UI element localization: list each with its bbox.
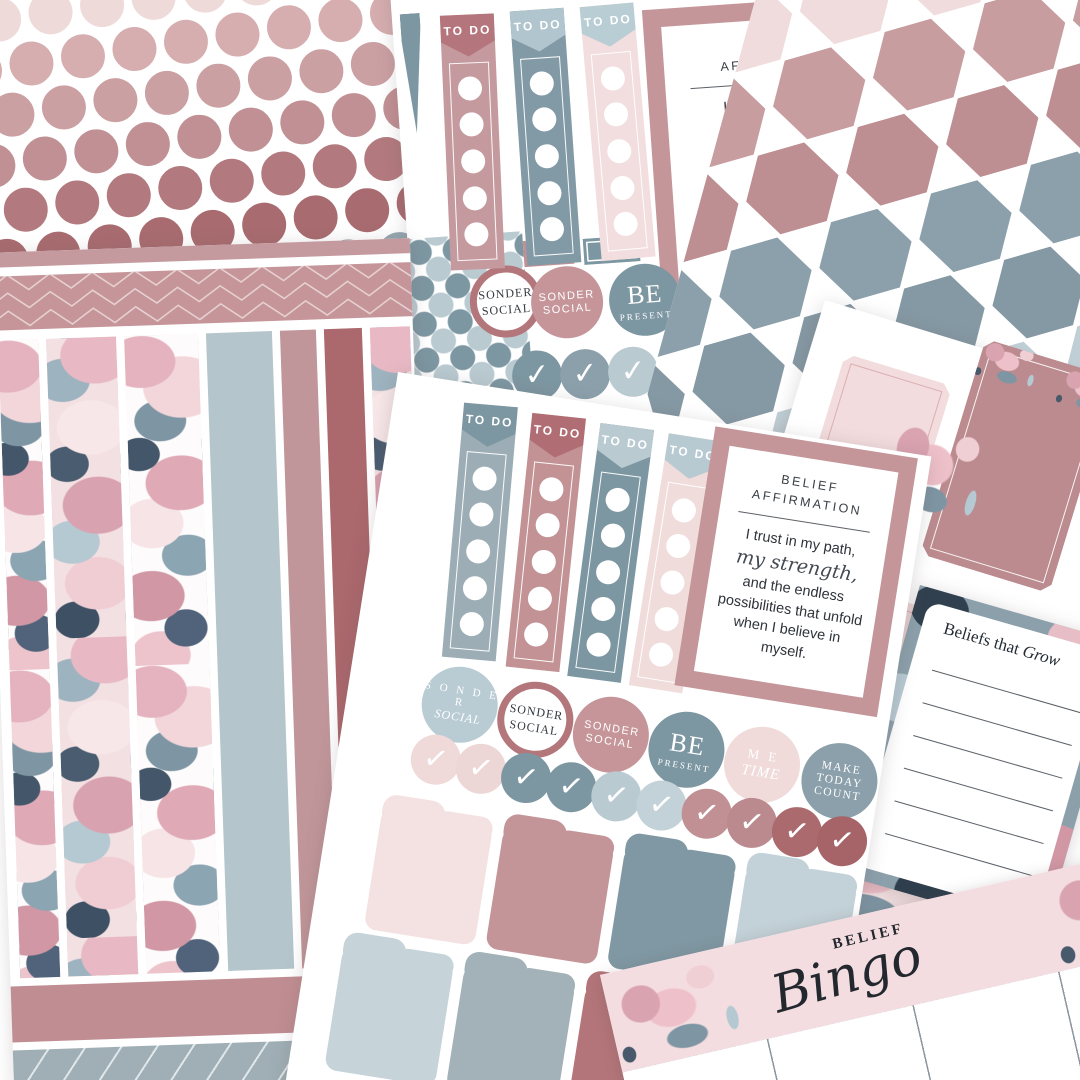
checklist-dot xyxy=(538,476,564,502)
checklist-dot xyxy=(585,631,612,658)
todo-strip-header: TO DO xyxy=(440,13,496,57)
dot-sticker xyxy=(277,98,327,148)
todo-strip-sticker: TO DO xyxy=(440,13,505,270)
checklist-dot xyxy=(468,502,494,528)
circle-sticker-label: SOCIAL xyxy=(481,300,531,318)
dot-sticker xyxy=(123,119,173,169)
dot-sticker xyxy=(264,2,314,52)
dot-sticker xyxy=(291,193,341,243)
checklist-dot xyxy=(590,595,617,622)
circle-sticker-me-time: M ETIME xyxy=(719,721,806,808)
checkmark-sticker: ✓ xyxy=(452,740,509,797)
dot-sticker xyxy=(194,61,244,111)
solid-washi-strip xyxy=(206,331,294,971)
dot-sticker xyxy=(104,170,154,220)
dot-sticker xyxy=(71,126,121,176)
checklist-dot xyxy=(529,70,555,96)
dot-sticker xyxy=(226,105,276,155)
checklist-dot xyxy=(604,486,631,513)
circle-sticker-label: BE xyxy=(626,278,663,310)
dot-sticker xyxy=(58,31,108,81)
checklist-dot xyxy=(462,185,487,210)
sticker-collage: BELIEF AFFIRMATION I trust in my path, m… xyxy=(0,0,1080,1080)
dot-sticker xyxy=(180,0,230,15)
dot-sticker xyxy=(207,156,257,206)
todo-strip-header: TO DO xyxy=(580,2,637,49)
dot-sticker xyxy=(232,0,282,8)
dot-sticker xyxy=(20,134,70,184)
todo-checklist-outline xyxy=(450,451,507,652)
checklist-dot xyxy=(653,605,680,632)
todo-strip-sticker: TO DO xyxy=(442,403,518,662)
checklist-dot xyxy=(534,143,560,169)
checklist-dot xyxy=(523,622,549,648)
dot-sticker xyxy=(283,0,333,1)
box-tab-sticker xyxy=(364,808,494,946)
dot-sticker xyxy=(245,54,295,104)
dot-sticker xyxy=(142,68,192,118)
dot-sticker xyxy=(0,90,37,140)
todo-strip-sticker: TO DO xyxy=(510,8,582,266)
checkmark-sticker: ✓ xyxy=(588,767,645,824)
dot-sticker xyxy=(258,149,308,199)
checkmark-sticker: ✓ xyxy=(813,813,870,870)
dot-sticker xyxy=(155,163,205,213)
checklist-dot xyxy=(539,217,565,243)
circle-sticker-sonder-social-ring: SONDERSOCIAL xyxy=(492,676,579,763)
checklist-dot xyxy=(457,76,482,101)
todo-checklist-outline xyxy=(514,461,574,662)
checklist-dot xyxy=(670,496,697,523)
floral-washi-strip xyxy=(46,336,138,976)
todo-checklist-outline xyxy=(520,56,574,256)
chevron-washi-strip xyxy=(0,262,412,331)
dot-sticker xyxy=(77,0,127,30)
todo-strip-header: TO DO xyxy=(528,413,586,460)
checkmark-sticker: ✓ xyxy=(558,347,611,400)
circle-sticker-label: SOCIAL xyxy=(543,301,593,316)
todo-checklist-outline xyxy=(449,62,498,262)
dot-sticker xyxy=(342,185,392,235)
checklist-dot xyxy=(459,112,484,137)
checklist-dot xyxy=(600,65,626,91)
dot-sticker xyxy=(129,0,179,23)
checkmark-sticker: ✓ xyxy=(723,795,780,852)
dot-sticker xyxy=(1,185,51,235)
hexagon-sticker xyxy=(1062,0,1080,60)
dot-sticker xyxy=(7,39,57,89)
dot-sticker xyxy=(348,39,398,89)
dot-sticker xyxy=(0,46,5,96)
todo-strip-header: TO DO xyxy=(460,403,517,450)
checklist-dot xyxy=(647,641,674,668)
dot-sticker xyxy=(174,112,224,162)
checklist-dot xyxy=(606,138,632,164)
affirmation-title: BELIEF AFFIRMATION xyxy=(751,466,867,520)
todo-strip-header: TO DO xyxy=(510,8,567,54)
checklist-dot xyxy=(599,522,626,549)
dot-sticker xyxy=(0,0,24,44)
dot-sticker xyxy=(91,75,141,125)
checklist-dot xyxy=(465,538,491,564)
todo-checklist-outline xyxy=(591,51,648,252)
checkmark-sticker: ✓ xyxy=(678,786,735,843)
checklist-dot xyxy=(534,512,560,538)
checkmark-sticker: ✓ xyxy=(497,749,554,806)
checklist-dot xyxy=(459,611,485,637)
dot-sticker xyxy=(0,141,18,191)
box-tab-sticker xyxy=(446,965,576,1080)
checklist-dot xyxy=(664,533,691,560)
dot-sticker xyxy=(39,83,89,133)
floral-washi-strip xyxy=(124,334,220,974)
checklist-dot xyxy=(613,211,639,237)
dot-sticker xyxy=(161,17,211,67)
checklist-dot xyxy=(532,107,558,133)
checklist-dot xyxy=(603,102,629,128)
dot-sticker xyxy=(329,90,379,140)
dot-sticker xyxy=(110,24,160,74)
checklist-dot xyxy=(527,585,553,611)
checklist-dot xyxy=(461,149,486,174)
dot-sticker xyxy=(310,141,360,191)
todo-checklist-outline xyxy=(575,472,641,674)
dot-sticker xyxy=(213,10,263,60)
checklist-dot xyxy=(462,575,488,601)
todo-strip-header: TO DO xyxy=(595,423,654,472)
circle-sticker-sonder-social-mauve: SONDERSOCIAL xyxy=(529,264,606,341)
box-tab-sticker xyxy=(324,946,454,1080)
dot-sticker xyxy=(26,0,76,37)
checklist-dot xyxy=(464,222,489,247)
checklist-dot xyxy=(659,569,686,596)
checklist-dot xyxy=(531,549,557,575)
checklist-dot xyxy=(609,175,635,201)
belief-affirmation-card: BELIEF AFFIRMATION I trust in my path, m… xyxy=(674,426,917,717)
checklist-dot xyxy=(472,465,498,491)
todo-strip-sliver xyxy=(400,13,428,134)
affirmation-body: I trust in my path, my strength, and the… xyxy=(710,521,874,672)
dot-sticker xyxy=(297,46,347,96)
box-tab-sticker xyxy=(485,827,615,965)
checklist-dot xyxy=(595,559,622,586)
circle-sticker-label: BE xyxy=(668,727,707,762)
checklist-dot xyxy=(537,180,563,206)
dot-sticker xyxy=(52,178,102,228)
dot-sticker xyxy=(316,0,366,45)
